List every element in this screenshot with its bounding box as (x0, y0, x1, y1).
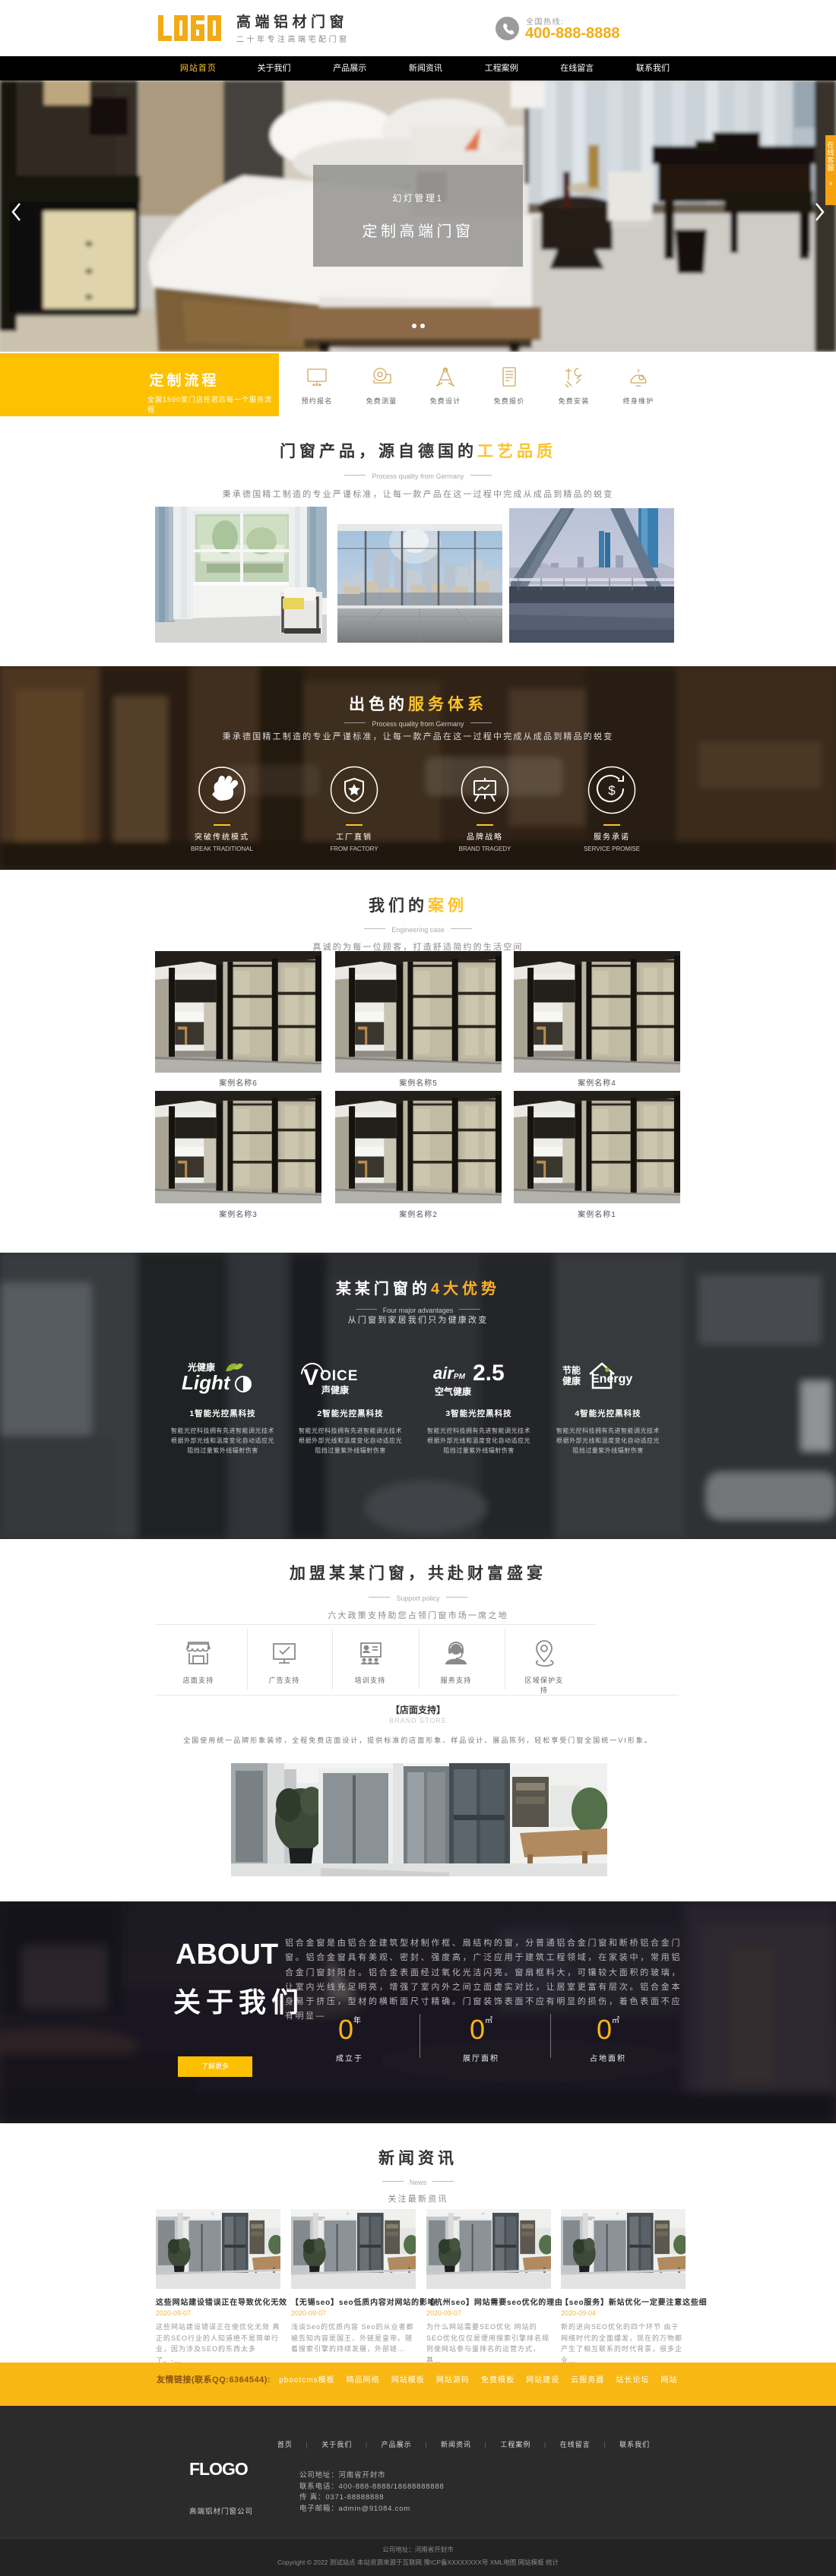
svg-text:$: $ (608, 783, 616, 798)
